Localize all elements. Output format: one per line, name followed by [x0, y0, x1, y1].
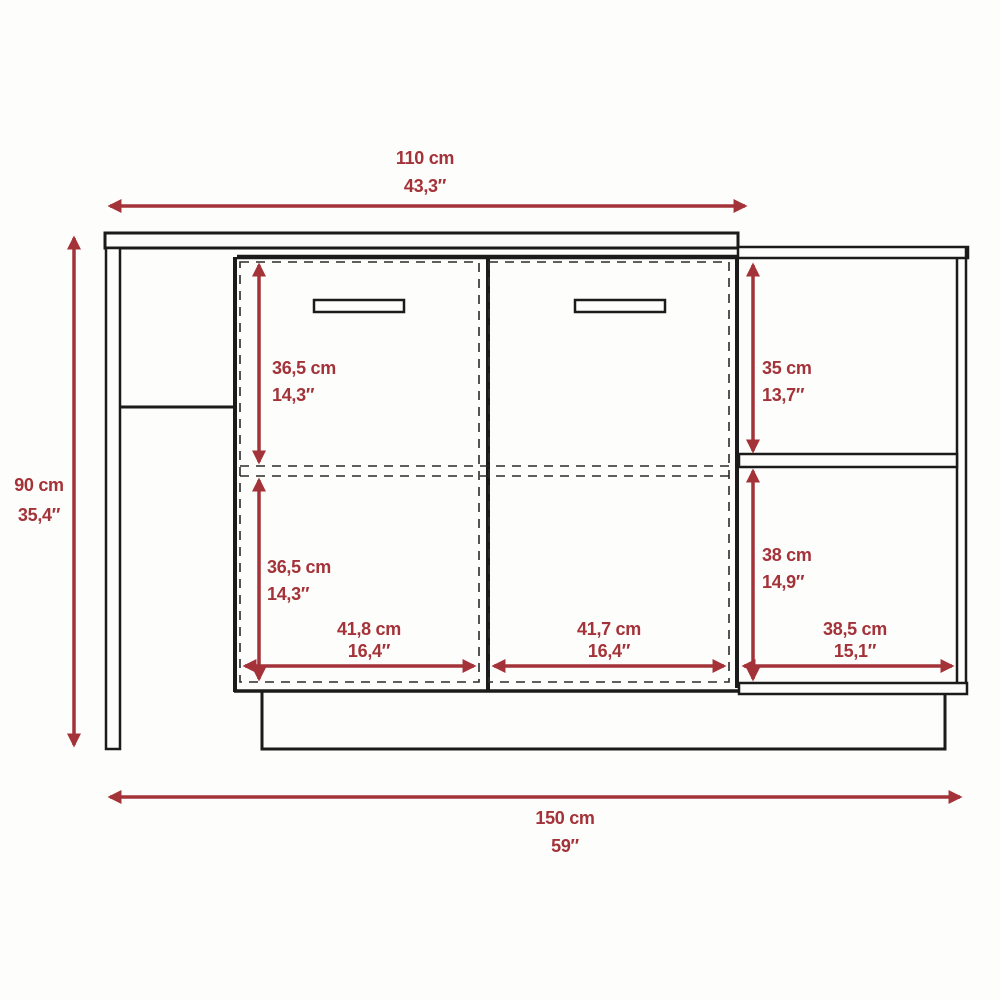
dim-label-shelf-width: 38,5 cm 15,1″ — [823, 618, 887, 662]
dim-label-lower-shelf-height: 38 cm 14,9″ — [762, 542, 812, 596]
dim-upper-shelf-height-inches: 13,7″ — [762, 382, 812, 409]
dim-top-width-inches: 43,3″ — [396, 172, 454, 200]
dim-lower-shelf-height-inches: 14,9″ — [762, 569, 812, 596]
dim-left-door-width-cm: 41,8 cm — [337, 618, 401, 640]
right-shelf — [739, 454, 957, 467]
diagram-drawing — [0, 0, 1000, 1000]
dim-upper-shelf-height-cm: 35 cm — [762, 355, 812, 382]
dim-label-left-door-width: 41,8 cm 16,4″ — [337, 618, 401, 662]
dimension-arrows — [74, 206, 960, 797]
dim-shelf-width-inches: 15,1″ — [823, 640, 887, 662]
dim-label-upper-door-height: 36,5 cm 14,3″ — [272, 355, 336, 409]
dim-overall-height-cm: 90 cm — [14, 470, 64, 500]
dim-top-width-cm: 110 cm — [396, 144, 454, 172]
dim-label-upper-shelf-height: 35 cm 13,7″ — [762, 355, 812, 409]
furniture-dimension-diagram: 110 cm 43,3″ 90 cm 35,4″ 150 cm 59″ 36,5… — [0, 0, 1000, 1000]
dim-left-door-width-inches: 16,4″ — [337, 640, 401, 662]
dim-shelf-width-cm: 38,5 cm — [823, 618, 887, 640]
dim-upper-door-height-inches: 14,3″ — [272, 382, 336, 409]
dim-overall-width-inches: 59″ — [535, 832, 594, 860]
dim-label-right-door-width: 41,7 cm 16,4″ — [577, 618, 641, 662]
dim-label-overall-height: 90 cm 35,4″ — [14, 470, 64, 530]
dim-lower-shelf-height-cm: 38 cm — [762, 542, 812, 569]
right-top-slab — [738, 247, 968, 258]
plinth-base — [262, 692, 945, 749]
dim-right-door-width-cm: 41,7 cm — [577, 618, 641, 640]
dim-overall-height-inches: 35,4″ — [14, 500, 64, 530]
cabinet-outline — [105, 233, 968, 749]
dim-label-overall-width: 150 cm 59″ — [535, 804, 594, 860]
door-dashed-outlines — [240, 262, 729, 682]
right-door-handle — [575, 300, 665, 312]
dim-lower-door-height-cm: 36,5 cm — [267, 554, 331, 581]
dim-right-door-width-inches: 16,4″ — [577, 640, 641, 662]
dim-upper-door-height-cm: 36,5 cm — [272, 355, 336, 382]
dim-lower-door-height-inches: 14,3″ — [267, 581, 331, 608]
dim-label-top-width: 110 cm 43,3″ — [396, 144, 454, 200]
right-bottom-bar — [739, 683, 967, 694]
left-door-handle — [314, 300, 404, 312]
dim-label-lower-door-height: 36,5 cm 14,3″ — [267, 554, 331, 608]
dim-overall-width-cm: 150 cm — [535, 804, 594, 832]
countertop — [105, 233, 738, 248]
left-leg — [106, 248, 120, 749]
